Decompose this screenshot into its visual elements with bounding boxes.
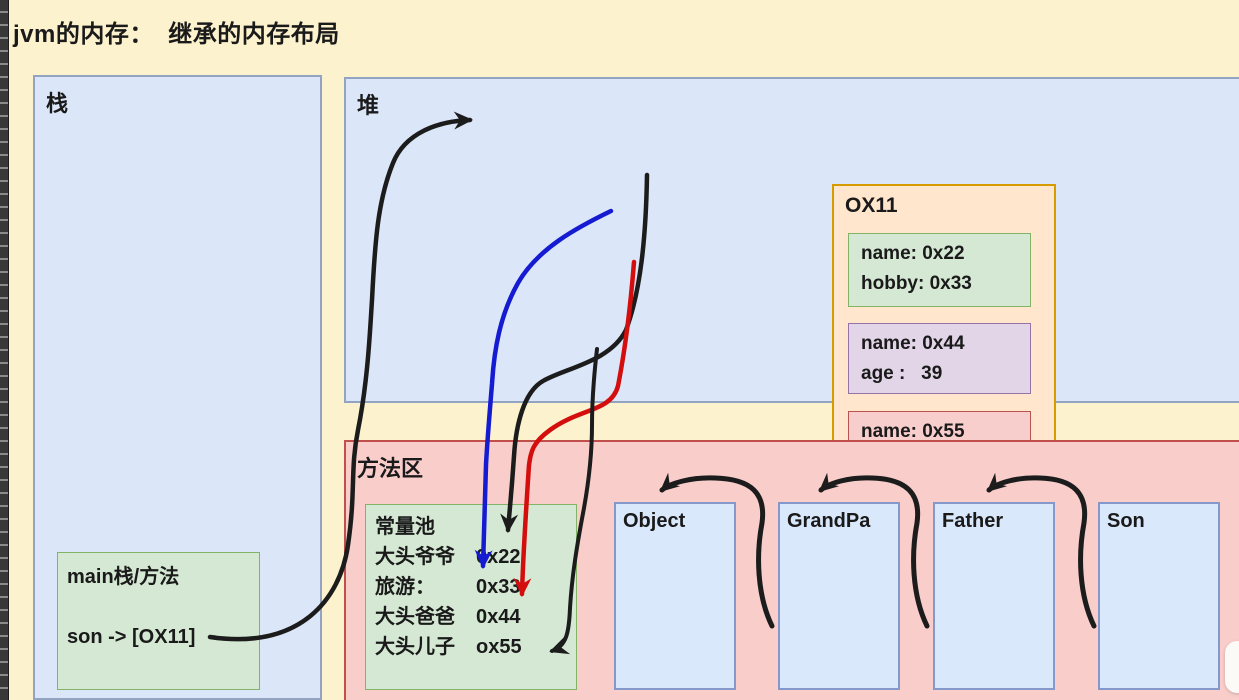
class-box-grandpa[interactable]: GrandPa: [778, 502, 900, 690]
edge-widget[interactable]: [1225, 641, 1239, 693]
frame-gap: [67, 592, 259, 622]
pool-entry: 大头儿子 ox55: [375, 632, 576, 662]
son-fields-box[interactable]: name: 0x22hobby: 0x33: [848, 233, 1031, 307]
pool-entry: 大头爸爸 0x44: [375, 602, 576, 632]
main-frame-title: main栈/方法: [67, 562, 259, 592]
constant-pool-title: 常量池: [375, 512, 576, 542]
field-name-0x55: name: 0x55: [861, 421, 965, 442]
pool-entry: 旅游： 0x33: [375, 572, 576, 602]
ruler-strip: [0, 0, 9, 700]
heap-region[interactable]: 堆 OX11 name: 0x22hobby: 0x33 name: 0x44a…: [344, 77, 1239, 403]
main-frame-box[interactable]: main栈/方法 son -> [OX11]: [57, 552, 260, 690]
field-name-0x44: name: 0x44: [861, 333, 965, 354]
class-box-son[interactable]: Son: [1098, 502, 1220, 690]
stack-label: 栈: [46, 86, 68, 118]
class-box-father[interactable]: Father: [933, 502, 1055, 690]
method-area-region[interactable]: 方法区 常量池 大头爷爷 0x22 旅游： 0x33 大头爸爸 0x44 大头儿…: [344, 440, 1239, 700]
diagram-canvas: jvm的内存： 继承的内存布局 栈 main栈/方法 son -> [OX11]…: [0, 0, 1239, 700]
object-address: OX11: [845, 194, 898, 218]
father-fields-box[interactable]: name: 0x44age : 39: [848, 323, 1031, 394]
page-title: jvm的内存： 继承的内存布局: [13, 14, 340, 49]
field-name-0x22: name: 0x22: [861, 243, 965, 264]
heap-object-box[interactable]: OX11 name: 0x22hobby: 0x33 name: 0x44age…: [832, 184, 1056, 467]
son-variable: son -> [OX11]: [67, 622, 259, 652]
heap-label: 堆: [357, 88, 379, 120]
pool-entry: 大头爷爷 0x22: [375, 542, 576, 572]
field-hobby-0x33: hobby: 0x33: [861, 273, 972, 294]
stack-region[interactable]: 栈 main栈/方法 son -> [OX11]: [33, 75, 322, 700]
constant-pool-box[interactable]: 常量池 大头爷爷 0x22 旅游： 0x33 大头爸爸 0x44 大头儿子 ox…: [365, 504, 577, 690]
field-age-39: age : 39: [861, 363, 942, 384]
class-box-object[interactable]: Object: [614, 502, 736, 690]
method-area-label: 方法区: [357, 451, 423, 483]
